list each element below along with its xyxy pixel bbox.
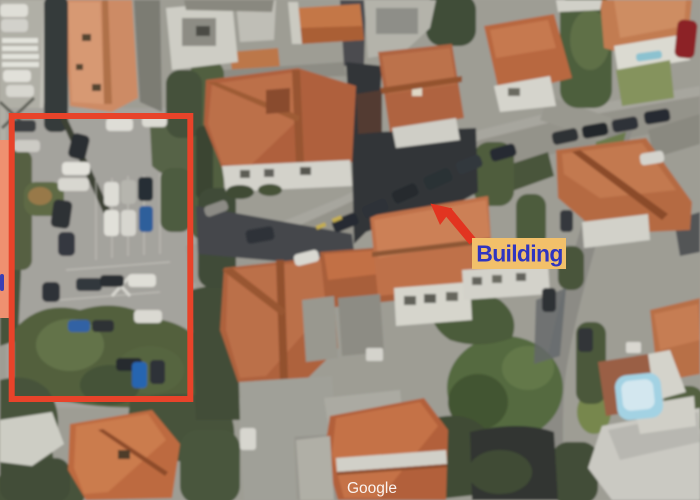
svg-text:Google: Google: [347, 480, 397, 497]
svg-text:Building: Building: [476, 241, 562, 267]
